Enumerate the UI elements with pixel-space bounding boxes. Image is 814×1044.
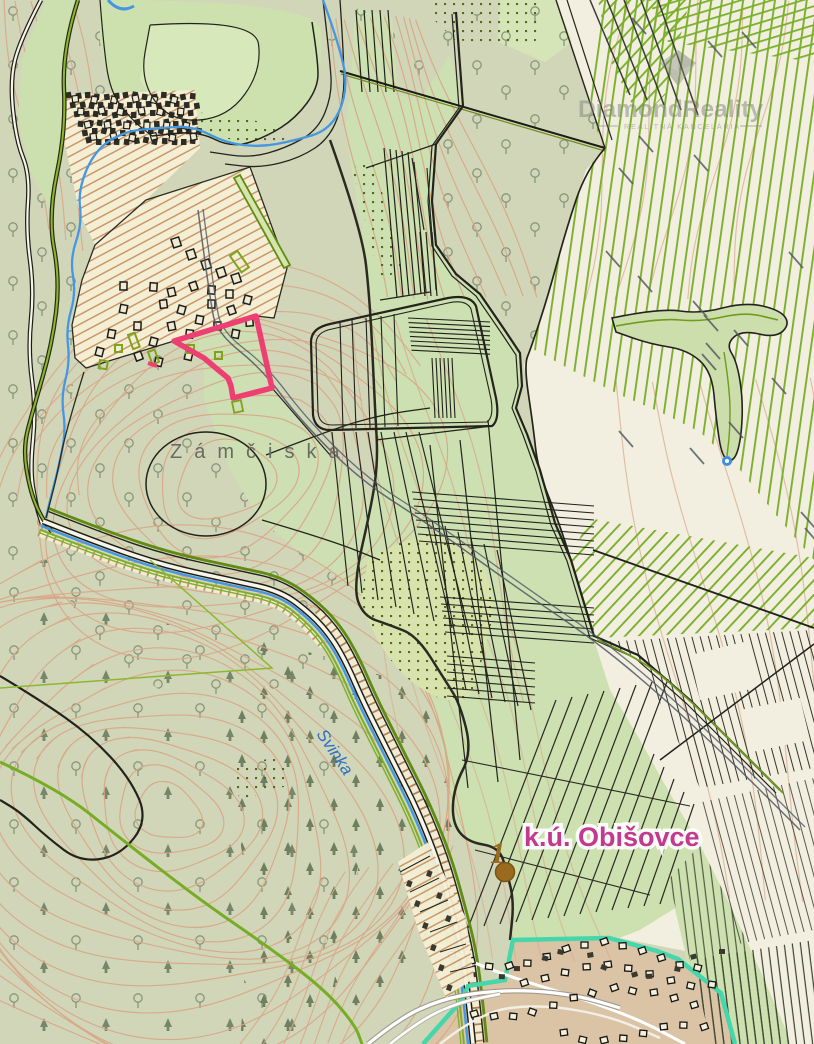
- svg-text:DiamondReality: DiamondReality: [578, 96, 764, 123]
- svg-text:Zámčiska: Zámčiska: [170, 441, 352, 463]
- svg-text:REALITNÁ KANCELÁRIA: REALITNÁ KANCELÁRIA: [624, 122, 741, 131]
- svg-text:k.ú. Obišovce: k.ú. Obišovce: [524, 822, 700, 852]
